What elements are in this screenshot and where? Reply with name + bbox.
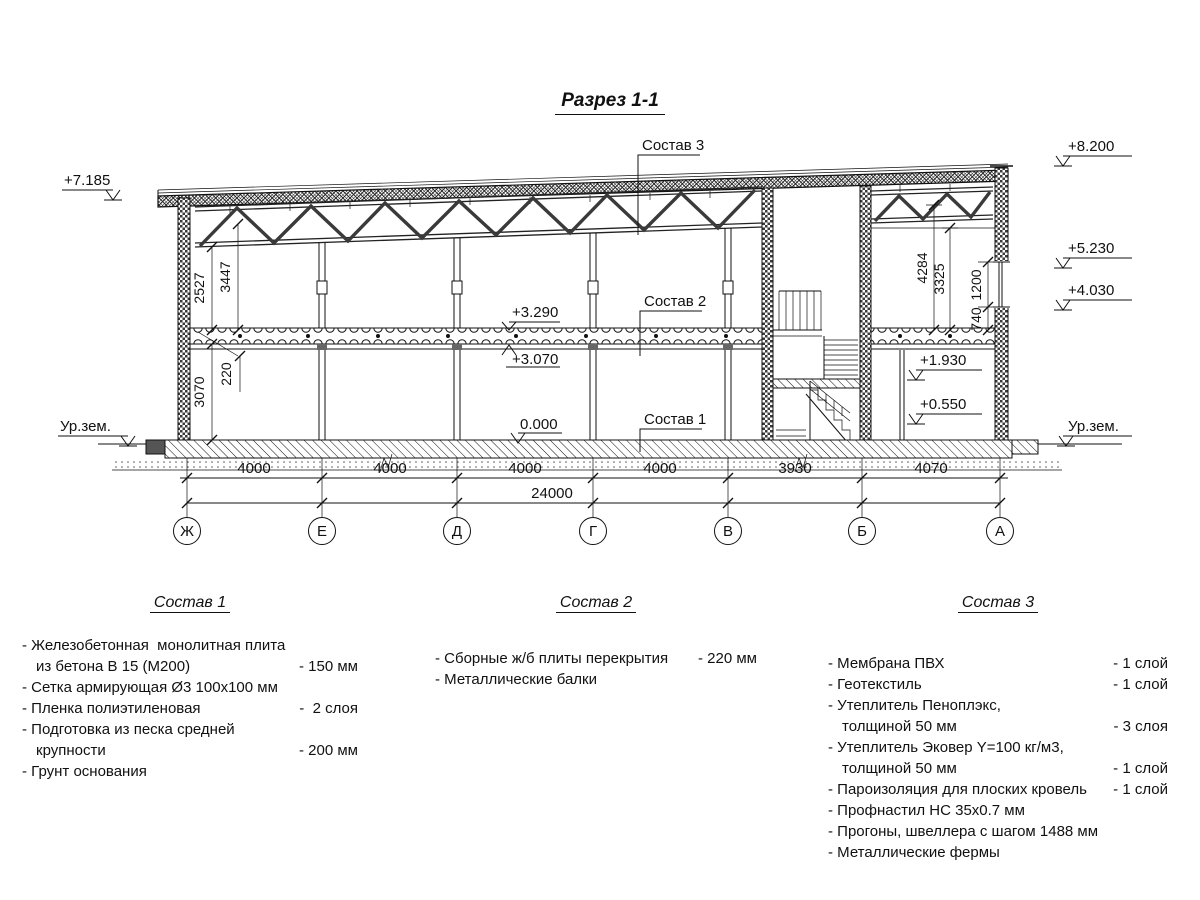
list-item: - Пленка полиэтиленовая- 2 слоя [22,698,358,719]
floor-slab-hollow-core [190,328,995,350]
svg-text:+3.290: +3.290 [512,304,558,321]
item-text: - Прогоны, швеллера с шагом 1488 мм [828,821,1098,842]
svg-text:+1.930: +1.930 [920,352,966,369]
svg-text:0.000: 0.000 [520,416,558,433]
dim-2527: 2527 [191,272,207,303]
stair-wall-right [860,186,871,443]
composition-block-3: Состав 3 - Мембрана ПВХ- 1 слой - Геотек… [828,592,1168,863]
partition [900,350,904,440]
dim-span: 4000 [508,460,541,477]
item-text: толщиной 50 мм [828,758,957,779]
dim-1200: 1200 [968,269,984,300]
window [993,261,1010,308]
list-item: - Подготовка из песка средней [22,719,358,740]
item-value: - 200 мм [299,740,358,761]
block-heading: Состав 3 [828,592,1168,613]
left-wall [178,198,190,443]
list-item: - Железобетонная монолитная плита [22,635,358,656]
dim-span: 3930 [778,460,811,477]
item-value: - 1 слой [1113,674,1168,695]
list-item: - Прогоны, швеллера с шагом 1488 мм [828,821,1168,842]
elevation-ground-left: Ур.зем. [58,418,137,446]
item-text: - Металлические балки [435,669,597,690]
list-item: - Металлические фермы [828,842,1168,863]
list-item: - Мембрана ПВХ- 1 слой [828,653,1168,674]
list-item: - Пароизоляция для плоских кровель- 1 сл… [828,779,1168,800]
dim-span: 4000 [643,460,676,477]
composition-block-1: Состав 1 - Железобетонная монолитная пли… [22,592,358,782]
composition-block-2: Состав 2 - Сборные ж/б плиты перекрытия-… [435,592,757,690]
item-text: - Подготовка из песка средней [22,719,235,740]
svg-text:+4.030: +4.030 [1068,282,1114,299]
dim-3447: 3447 [217,261,233,292]
svg-text:Ур.зем.: Ур.зем. [60,418,111,435]
list-item: - Сетка армирующая Ø3 100х100 мм [22,677,358,698]
dim-span: 4000 [373,460,406,477]
axis-label: А [995,523,1005,540]
dim-740: 740 [968,307,984,331]
list-item: - Грунт основания [22,761,358,782]
item-value: - 1 слой [1113,653,1168,674]
list-item: - Металлические балки [435,669,757,690]
axis-label: Д [452,523,462,540]
list-item: толщиной 50 мм- 3 слоя [828,716,1168,737]
elevation-top-right: +8.200 [1054,138,1132,166]
dim-span: 4070 [914,460,947,477]
item-value: - 2 слоя [299,698,358,719]
svg-text:+5.230: +5.230 [1068,240,1114,257]
roof-assembly [158,164,1013,213]
callout-sostav2: Состав 2 [640,293,706,356]
item-value: - 150 мм [299,656,358,677]
item-text: - Утеплитель Пеноплэкс, [828,695,1001,716]
axis-bubbles: Ж Е Д Г В Б А [174,518,1014,545]
item-text: - Профнастил НС 35х0.7 мм [828,800,1025,821]
elevation-slab-top: +3.290 [502,304,560,330]
dim-3325: 3325 [931,263,947,294]
dim-total: 24000 [531,485,573,502]
axis-label: Е [317,523,327,540]
dim-3070: 3070 [191,376,207,407]
item-text: - Сборные ж/б плиты перекрытия [435,648,668,669]
item-text: - Грунт основания [22,761,147,782]
elevation-window-sill: +4.030 [1054,282,1132,310]
dim-220: 220 [218,362,234,386]
svg-text:+7.185: +7.185 [64,172,110,189]
axis-label: В [723,523,733,540]
list-item: крупности- 200 мм [22,740,358,761]
item-value: - 220 мм [698,648,757,669]
svg-text:+0.550: +0.550 [920,396,966,413]
item-value: - 1 слой [1113,779,1168,800]
elevation-porch: +0.550 [907,396,982,424]
item-value: - 3 слоя [1113,716,1168,737]
item-text: - Утеплитель Эковер Y=100 кг/м3, [828,737,1064,758]
steel-truss-right [871,187,995,228]
svg-text:+3.070: +3.070 [512,351,558,368]
item-value: - 1 слой [1113,758,1168,779]
item-text: толщиной 50 мм [828,716,957,737]
list-item: - Профнастил НС 35х0.7 мм [828,800,1168,821]
item-text: - Сетка армирующая Ø3 100х100 мм [22,677,278,698]
axis-label: Ж [180,523,194,540]
item-text: - Геотекстиль [828,674,922,695]
elevation-ground-right: Ур.зем. [1057,418,1132,446]
svg-text:Состав 3: Состав 3 [642,137,704,154]
dim-span: 4000 [237,460,270,477]
staircase [773,291,860,443]
elevation-zero: 0.000 [511,416,562,443]
svg-text:Состав 2: Состав 2 [644,293,706,310]
svg-text:Состав 1: Состав 1 [644,411,706,428]
item-text: - Металлические фермы [828,842,1000,863]
svg-text:Ур.зем.: Ур.зем. [1068,418,1119,435]
item-text: крупности [22,740,106,761]
item-text: - Железобетонная монолитная плита [22,635,285,656]
item-text: - Пароизоляция для плоских кровель [828,779,1087,800]
elevation-left-roof: +7.185 [62,172,122,200]
item-text: - Мембрана ПВХ [828,653,945,674]
block-heading: Состав 1 [22,592,358,613]
stair-wall-left [762,188,773,443]
list-item: - Геотекстиль- 1 слой [828,674,1168,695]
elevation-slab-bottom: +3.070 [502,345,560,368]
list-item: толщиной 50 мм- 1 слой [828,758,1168,779]
block-heading: Состав 2 [435,592,757,613]
dim-4284: 4284 [914,252,930,283]
elevation-window-head: +5.230 [1054,240,1132,268]
list-item: - Утеплитель Пеноплэкс, [828,695,1168,716]
item-text: - Пленка полиэтиленовая [22,698,201,719]
drawing-sheet: Разрез 1-1 [0,0,1200,900]
list-item: - Сборные ж/б плиты перекрытия- 220 мм [435,648,757,669]
list-item: - Утеплитель Эковер Y=100 кг/м3, [828,737,1168,758]
list-item: из бетона В 15 (М200)- 150 мм [22,656,358,677]
axis-label: Б [857,523,867,540]
axis-label: Г [589,523,597,540]
svg-text:+8.200: +8.200 [1068,138,1114,155]
section-drawing: +7.185 Ур.зем. +8.200 +5.230 [0,0,1200,575]
elevation-mezz: +1.930 [907,352,982,380]
item-text: из бетона В 15 (М200) [22,656,190,677]
